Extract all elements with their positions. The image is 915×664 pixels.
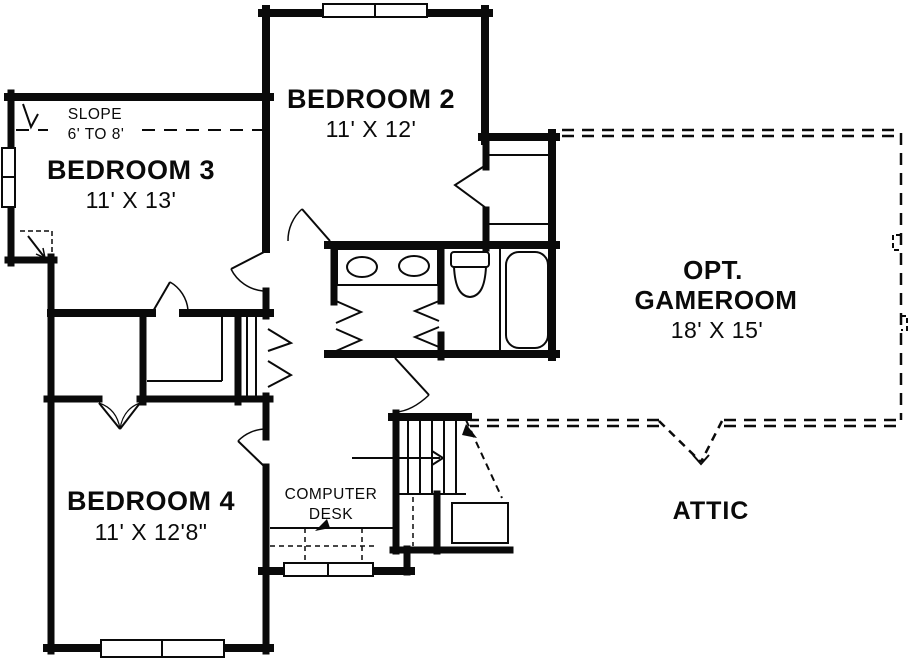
toilet-room-door — [415, 301, 439, 347]
bedroom2-closet-door — [455, 165, 486, 208]
walkin-closet-door — [152, 282, 188, 313]
bedroom4-dims: 11' X 12'8" — [95, 519, 208, 545]
bathroom-door — [336, 301, 361, 351]
stair-door — [395, 358, 429, 412]
bedroom3-dims: 11' X 13' — [86, 187, 177, 213]
computer-desk-label-line2: DESK — [309, 506, 353, 523]
toilet — [451, 252, 489, 297]
sink-left-icon — [347, 257, 377, 277]
computer-desk — [270, 528, 396, 567]
bedroom2-door — [288, 209, 330, 241]
gameroom-label: GAMEROOM — [635, 285, 798, 315]
bedroom4-window — [101, 640, 224, 657]
computer-desk-window — [284, 563, 373, 576]
gameroom-prefix: OPT. — [683, 255, 743, 285]
bedroom2-label: BEDROOM 2 — [287, 84, 455, 114]
bedroom4-door — [238, 429, 266, 468]
stair-rail — [462, 420, 502, 498]
gameroom-dims: 18' X 15' — [671, 317, 764, 343]
slope-corner-marker-top — [23, 104, 38, 127]
attic-label: ATTIC — [673, 497, 750, 525]
sink-right-icon — [399, 256, 429, 276]
floor-plan-drawing: BEDROOM 2 11' X 12' BEDROOM 3 11' X 13' … — [0, 0, 915, 664]
double-vanity — [337, 249, 438, 285]
linen-closet-door — [268, 329, 291, 387]
bedroom3-label: BEDROOM 3 — [47, 155, 215, 185]
slope-note-line2: 6' TO 8' — [68, 126, 125, 143]
bedroom3-door — [231, 251, 266, 291]
bedroom4-closet-double-doors — [99, 403, 140, 429]
bedroom2-window — [323, 4, 427, 17]
slope-note-line1: SLOPE — [68, 106, 122, 123]
landing-cabinet — [452, 503, 508, 543]
computer-desk-label-line1: COMPUTER — [285, 486, 378, 503]
bedroom3-window — [2, 148, 15, 207]
bathtub — [506, 252, 548, 348]
bedroom2-dims: 11' X 12' — [326, 116, 417, 142]
floor-plan: BEDROOM 2 11' X 12' BEDROOM 3 11' X 13' … — [0, 0, 915, 664]
bedroom4-label: BEDROOM 4 — [67, 486, 235, 516]
